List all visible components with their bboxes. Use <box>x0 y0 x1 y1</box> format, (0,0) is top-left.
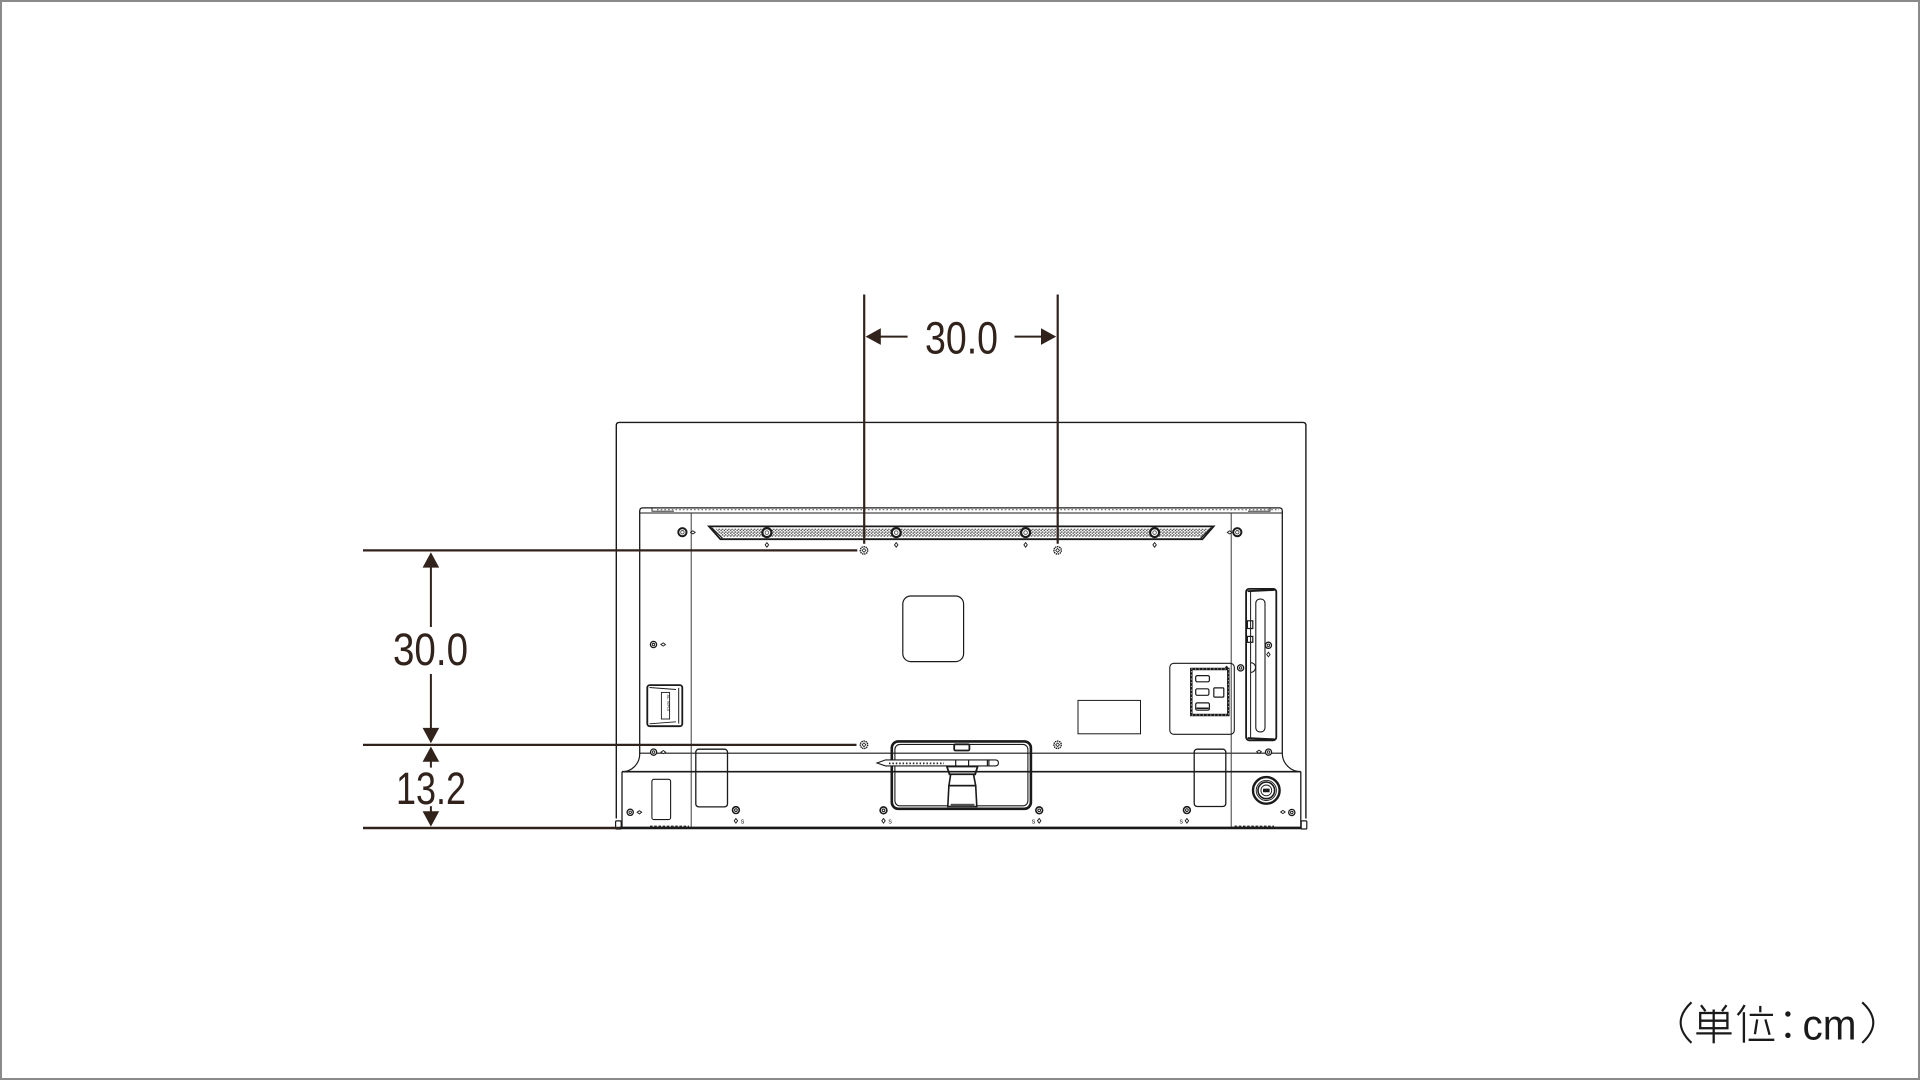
svg-text:s: s <box>1180 819 1184 826</box>
svg-text:s: s <box>888 819 892 826</box>
svg-text:s: s <box>1032 819 1036 826</box>
svg-text:AC INPUT: AC INPUT <box>666 695 670 712</box>
svg-text:30.0: 30.0 <box>925 312 998 363</box>
svg-text:30.0: 30.0 <box>393 624 468 675</box>
svg-text:cm: cm <box>1803 1002 1857 1050</box>
svg-text:13.2: 13.2 <box>396 763 466 814</box>
svg-text:s: s <box>741 819 745 826</box>
